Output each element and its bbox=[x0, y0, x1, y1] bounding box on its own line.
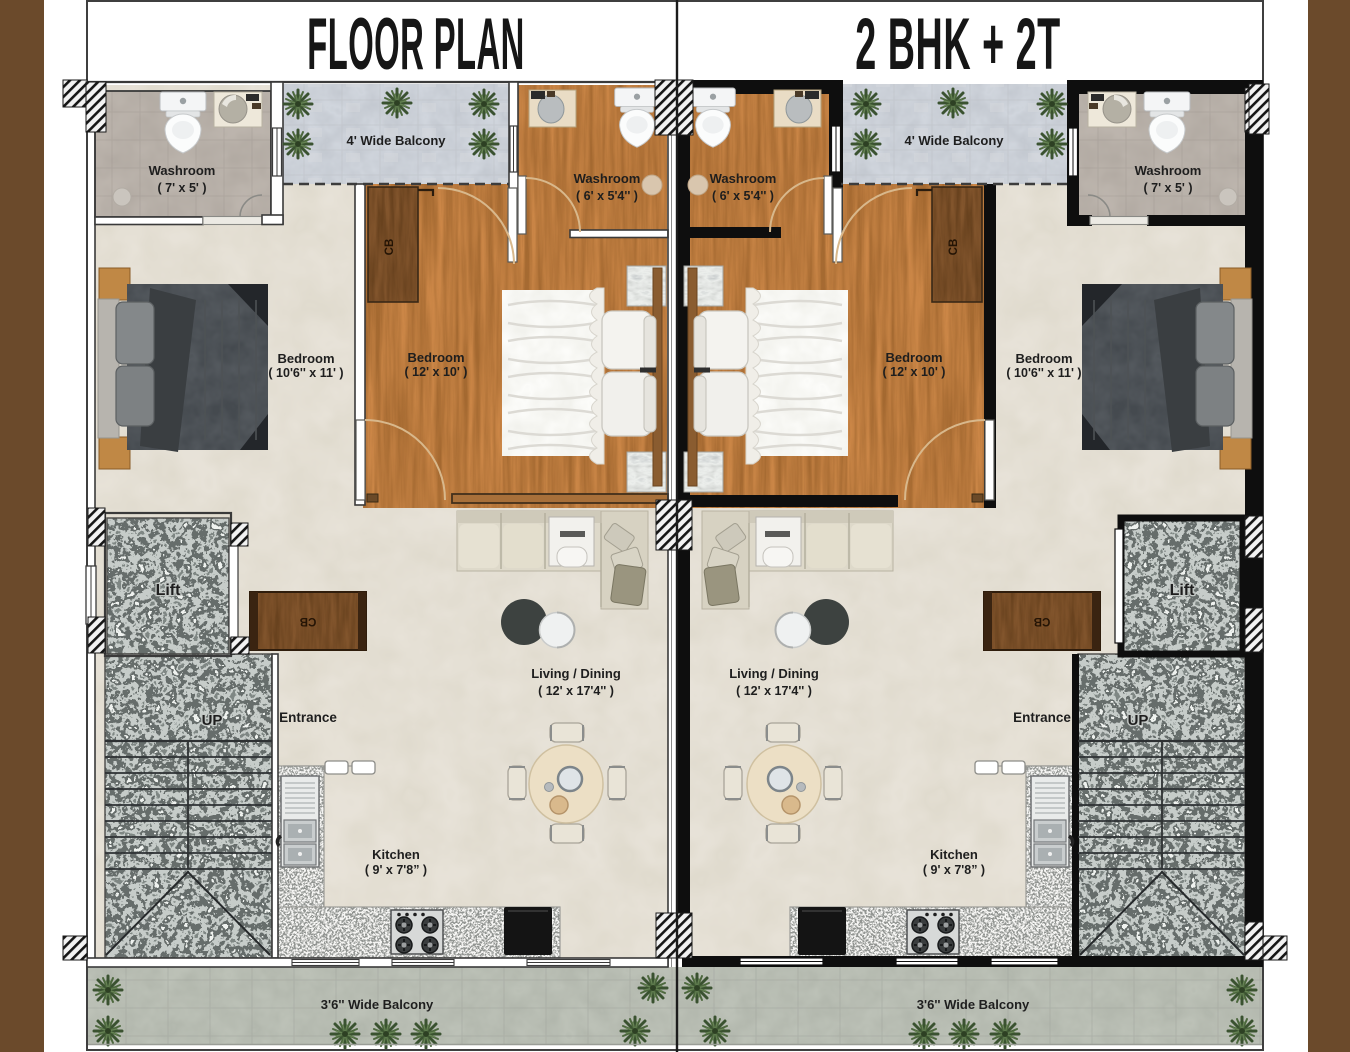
svg-text:( 10'6'' x 11' ): ( 10'6'' x 11' ) bbox=[1006, 366, 1081, 380]
svg-text:4' Wide Balcony: 4' Wide Balcony bbox=[346, 133, 446, 148]
svg-text:Kitchen: Kitchen bbox=[372, 847, 420, 862]
svg-text:CB: CB bbox=[384, 239, 396, 256]
svg-text:Bedroom: Bedroom bbox=[1015, 351, 1072, 366]
svg-text:Kitchen: Kitchen bbox=[930, 847, 978, 862]
svg-text:( 12' x 17'4'' ): ( 12' x 17'4'' ) bbox=[736, 684, 812, 698]
svg-text:Lift: Lift bbox=[156, 582, 182, 599]
svg-text:( 12' x 10' ): ( 12' x 10' ) bbox=[883, 365, 946, 379]
svg-text:( 9' x 7'8” ): ( 9' x 7'8” ) bbox=[923, 863, 985, 877]
svg-text:Bedroom: Bedroom bbox=[277, 351, 334, 366]
svg-text:Washroom: Washroom bbox=[710, 171, 777, 186]
svg-text:CB: CB bbox=[300, 615, 317, 627]
svg-text:4' Wide Balcony: 4' Wide Balcony bbox=[904, 133, 1004, 148]
svg-text:( 9' x 7'8” ): ( 9' x 7'8” ) bbox=[365, 863, 427, 877]
svg-text:FLOOR PLAN: FLOOR PLAN bbox=[307, 3, 525, 84]
svg-text:Washroom: Washroom bbox=[149, 163, 216, 178]
svg-text:UP: UP bbox=[202, 712, 223, 729]
svg-text:3'6'' Wide Balcony: 3'6'' Wide Balcony bbox=[917, 997, 1030, 1012]
svg-text:CB: CB bbox=[948, 239, 960, 256]
svg-text:Bedroom: Bedroom bbox=[407, 350, 464, 365]
svg-text:( 6' x 5'4'' ): ( 6' x 5'4'' ) bbox=[712, 189, 774, 203]
svg-text:UP: UP bbox=[1128, 712, 1149, 729]
svg-text:( 12' x 17'4'' ): ( 12' x 17'4'' ) bbox=[538, 684, 614, 698]
svg-text:( 6' x 5'4'' ): ( 6' x 5'4'' ) bbox=[576, 189, 638, 203]
svg-text:Lift: Lift bbox=[1170, 582, 1196, 599]
svg-text:CB: CB bbox=[1034, 615, 1051, 627]
svg-text:Washroom: Washroom bbox=[574, 171, 641, 186]
svg-text:( 10'6'' x 11' ): ( 10'6'' x 11' ) bbox=[268, 366, 343, 380]
svg-text:( 7' x 5' ): ( 7' x 5' ) bbox=[157, 181, 206, 195]
svg-text:2 BHK + 2T: 2 BHK + 2T bbox=[855, 4, 1060, 86]
svg-text:( 7' x 5' ): ( 7' x 5' ) bbox=[1143, 181, 1192, 195]
svg-text:Washroom: Washroom bbox=[1135, 163, 1202, 178]
svg-text:Entrance: Entrance bbox=[279, 710, 337, 725]
svg-text:3'6'' Wide Balcony: 3'6'' Wide Balcony bbox=[321, 997, 434, 1012]
svg-text:Bedroom: Bedroom bbox=[885, 350, 942, 365]
svg-text:Entrance: Entrance bbox=[1013, 710, 1071, 725]
svg-text:( 12' x 10' ): ( 12' x 10' ) bbox=[405, 365, 468, 379]
svg-text:Living / Dining: Living / Dining bbox=[531, 666, 621, 681]
svg-text:Living / Dining: Living / Dining bbox=[729, 666, 819, 681]
